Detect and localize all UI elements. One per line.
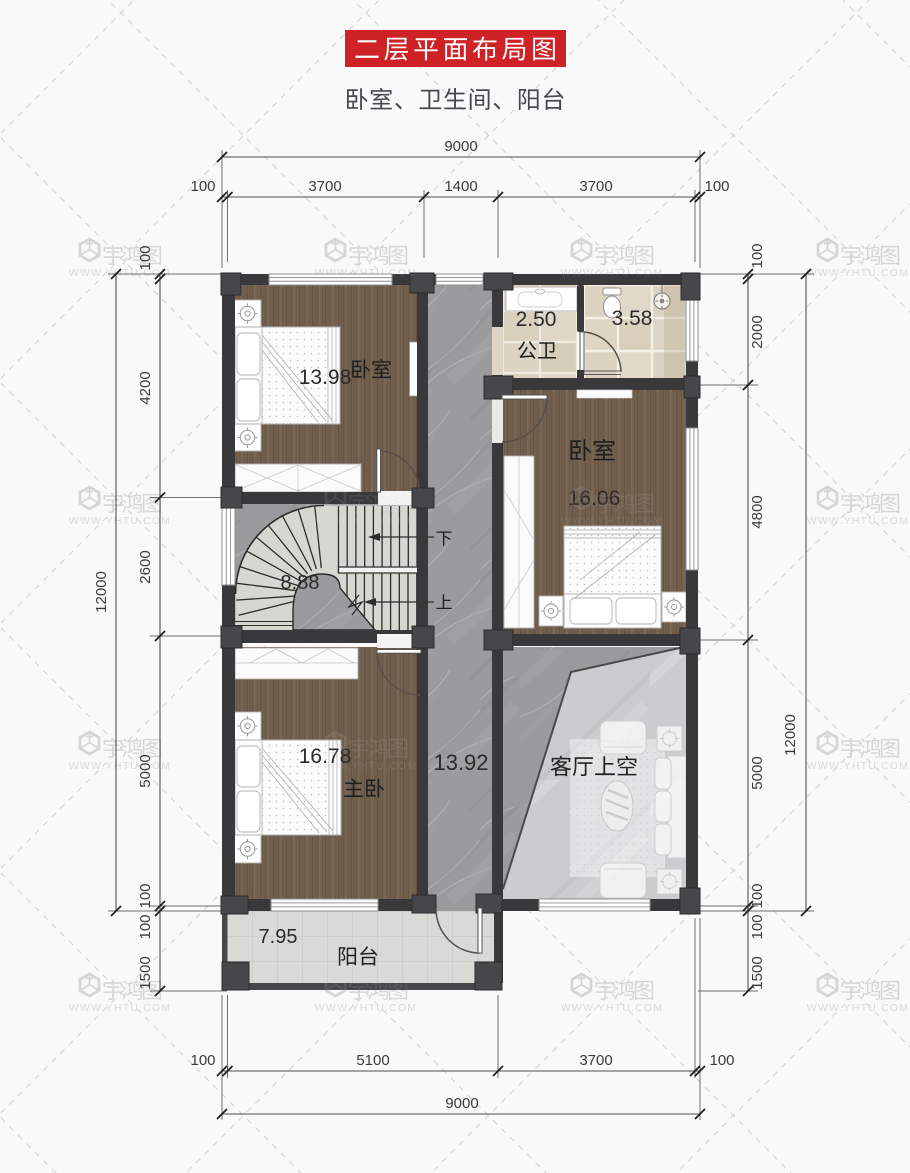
svg-text:100: 100 — [704, 178, 729, 195]
svg-text:1400: 1400 — [444, 178, 477, 195]
svg-text:2000: 2000 — [749, 315, 766, 348]
svg-text:5100: 5100 — [356, 1052, 389, 1069]
svg-text:5000: 5000 — [749, 756, 766, 789]
svg-text:100: 100 — [749, 914, 766, 939]
svg-text:12000: 12000 — [93, 571, 110, 613]
svg-text:8.88: 8.88 — [281, 572, 320, 594]
svg-text:100: 100 — [709, 1052, 734, 1069]
svg-text:100: 100 — [137, 914, 154, 939]
svg-text:WWW.YHTU.COM: WWW.YHTU.COM — [69, 1002, 171, 1014]
svg-text:100: 100 — [190, 1052, 215, 1069]
svg-text:12000: 12000 — [782, 714, 799, 756]
svg-text:4200: 4200 — [137, 371, 154, 404]
svg-text:13.98: 13.98 — [299, 366, 352, 389]
svg-text:WWW.YHTU.COM: WWW.YHTU.COM — [807, 760, 909, 772]
svg-text:9000: 9000 — [444, 138, 477, 155]
svg-text:WWW.YHTU.COM: WWW.YHTU.COM — [807, 515, 909, 527]
svg-text:2.50: 2.50 — [516, 308, 557, 331]
svg-text:5000: 5000 — [137, 754, 154, 787]
svg-text:3700: 3700 — [308, 178, 341, 195]
svg-text:100: 100 — [190, 178, 215, 195]
svg-text:1500: 1500 — [749, 956, 766, 989]
svg-text:WWW.YHTU.COM: WWW.YHTU.COM — [807, 1002, 909, 1014]
svg-text:13.92: 13.92 — [433, 750, 488, 775]
svg-text:100: 100 — [137, 245, 154, 270]
svg-text:3700: 3700 — [579, 178, 612, 195]
svg-text:100: 100 — [749, 243, 766, 268]
svg-text:WWW.YHTU.COM: WWW.YHTU.COM — [561, 515, 663, 527]
svg-text:3.58: 3.58 — [612, 307, 653, 330]
svg-text:WWW.YHTU.COM: WWW.YHTU.COM — [807, 267, 909, 279]
svg-text:2600: 2600 — [137, 550, 154, 583]
svg-text:100: 100 — [749, 883, 766, 908]
svg-text:4800: 4800 — [749, 495, 766, 528]
svg-text:1500: 1500 — [137, 956, 154, 989]
svg-text:3700: 3700 — [579, 1052, 612, 1069]
svg-text:WWW.YHTU.COM: WWW.YHTU.COM — [69, 515, 171, 527]
svg-text:WWW.YHTU.COM: WWW.YHTU.COM — [315, 515, 417, 527]
svg-text:WWW.YHTU.COM: WWW.YHTU.COM — [561, 760, 663, 772]
svg-text:100: 100 — [137, 883, 154, 908]
svg-text:7.95: 7.95 — [259, 926, 298, 948]
svg-text:WWW.YHTU.COM: WWW.YHTU.COM — [315, 1002, 417, 1014]
svg-text:9000: 9000 — [445, 1095, 478, 1112]
svg-text:WWW.YHTU.COM: WWW.YHTU.COM — [561, 1002, 663, 1014]
svg-text:WWW.YHTU.COM: WWW.YHTU.COM — [315, 760, 417, 772]
svg-text:WWW.YHTU.COM: WWW.YHTU.COM — [69, 760, 171, 772]
